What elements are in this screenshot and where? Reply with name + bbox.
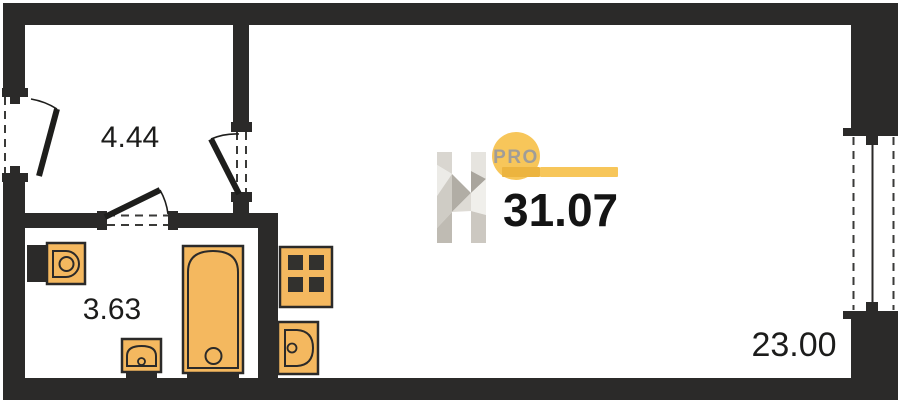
wall-right-lower	[851, 319, 898, 378]
bath-door-jamb-right	[168, 211, 178, 230]
floor-plan: 4.44 3.63 23.00 PRO 31.07	[0, 0, 900, 406]
entrance-jamb-top	[2, 88, 28, 97]
entrance-jamb-bottom-notch	[10, 166, 20, 173]
hallway-area-label: 4.44	[101, 121, 159, 154]
window-sill-bottom	[843, 311, 898, 319]
stove-body	[280, 247, 332, 307]
window-sill-top	[843, 128, 898, 136]
wall-top	[3, 3, 898, 25]
pro-badge-label: PRO	[493, 147, 539, 168]
entrance-jamb-bottom	[2, 173, 28, 182]
toilet-tank	[27, 245, 48, 282]
bathtub-body	[183, 246, 243, 373]
logo-underline-dark	[502, 167, 540, 177]
bathroom-area-label: 3.63	[83, 293, 141, 326]
toilet-icon	[27, 243, 85, 284]
wall-right-upper	[851, 25, 898, 128]
wall-hall-bath-left	[25, 213, 97, 228]
stove-icon	[280, 247, 332, 307]
wall-bottom	[3, 378, 898, 400]
stove-burner-1	[288, 255, 303, 270]
entrance-jamb-top-notch	[10, 97, 20, 104]
wall-bath-living	[258, 213, 278, 378]
logo-underline	[540, 167, 618, 177]
bathtub-icon	[183, 246, 243, 378]
living-room-area-label: 23.00	[751, 326, 836, 364]
wall-left-upper	[3, 25, 25, 88]
kitchen-sink-icon	[278, 322, 318, 374]
stove-burner-2	[309, 255, 324, 270]
total-area-label: 31.07	[503, 184, 618, 236]
stove-burner-4	[309, 277, 324, 292]
bathroom-sink-icon	[122, 339, 161, 378]
floor-plan-canvas: 4.44 3.63 23.00 PRO 31.07	[0, 0, 900, 406]
stove-burner-3	[288, 277, 303, 292]
wall-hall-living-upper	[233, 25, 249, 122]
wall-left-lower	[3, 182, 25, 378]
hall-door-jamb-top	[231, 122, 252, 132]
